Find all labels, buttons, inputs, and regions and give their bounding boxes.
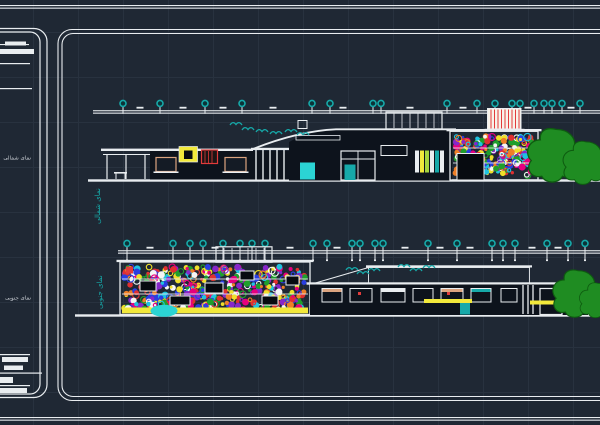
grid-bubble [454,240,460,246]
clerestory-mullions [394,113,434,128]
facade-dot [263,265,269,271]
facade-dot [493,143,497,147]
facade-band [453,148,536,149]
facade-dot [195,265,200,270]
bench-legs [116,174,125,180]
facade-dot [232,283,235,286]
striped-door [202,150,218,164]
titleblock-bars [0,42,42,394]
dimension-text-dash [180,107,187,109]
facade-dot [221,302,225,306]
teal-door [460,301,470,315]
facade-dot [210,274,217,281]
facade-dot [236,283,242,289]
grid-bubble-foot [382,260,384,262]
titleblock-north-label: نمای شمالی [3,156,31,162]
cyan-blob [151,305,178,317]
yellow-base-strip [122,308,308,314]
facade-dot [296,268,300,272]
south-side-label: نمای جنوبی [96,275,104,309]
facade-dot [202,295,206,299]
bird-icon [230,123,242,125]
titleblock-south-label: نمای جنوبی [5,296,31,302]
facade-dot [496,135,502,141]
facade-dot [205,264,211,270]
yellow-volume-window [184,151,193,160]
facade-dot [231,294,237,300]
facade-dot [276,264,282,270]
window [225,158,246,172]
facade-dot [158,271,165,278]
grid-bubble [489,240,495,246]
facade-dot [248,298,252,302]
bird-icon [256,130,268,132]
facade-dot [189,288,196,295]
facade-dot [128,283,131,286]
grid-bubble [237,240,243,246]
grid-bubble [370,100,376,106]
bird-icon [357,272,369,274]
facade-dot [176,286,182,292]
titleblock-bar [5,42,26,46]
titleblock-bar [0,385,30,386]
dimension-text-dash [402,247,409,249]
grid-bubble [549,100,555,106]
facade-dot [146,302,151,307]
grid-bubble [309,100,315,106]
grid-bubble [512,240,518,246]
titleblock-bar [4,366,23,371]
facade-dot [170,266,176,272]
south-dot-facade [121,264,308,313]
facade-dot [260,285,263,288]
north-building [88,109,600,185]
red-accent [358,292,361,295]
titleblock-bar [0,377,13,383]
facade-opening [140,281,156,291]
sloped-roof-line [312,268,369,285]
south-elevation: نمای جنوبی [75,240,600,317]
cad-canvas[interactable]: نمای شمالی نمای جنوبی نمای شمالی [0,0,600,425]
facade-dot [161,281,164,284]
facade-dot [511,171,514,174]
facade-dot [264,281,269,286]
facade-dot [508,149,515,156]
facade-opening [457,154,484,181]
grid-bubble [541,100,547,106]
facade-band [122,294,308,295]
facade-dot [185,267,188,270]
cyan-panel [300,163,315,180]
facade-dot [276,284,280,288]
north-elevation: نمای شمالی [88,100,600,224]
dimension-text-dash [568,107,575,109]
north-dot-facade [453,133,537,180]
facade-dot [302,274,308,280]
grid-bubble [200,240,206,246]
grid-bubble-foot [567,260,569,262]
dimension-line [93,110,600,111]
grid-bubble-foot [427,260,429,262]
grid-bubble [474,100,480,106]
facade-dot [519,138,522,141]
facade-dot [227,286,231,290]
facade-dot [298,298,302,302]
titleblock: نمای شمالی نمای جنوبی [0,29,47,398]
grid-bubble [157,100,163,106]
facade-dot [514,148,519,153]
north-dimension-line [93,100,600,113]
grid-bubble [324,240,330,246]
facade-dot [272,283,275,286]
grid-bubble [187,240,193,246]
facade-opening [170,296,190,305]
facade-dot [228,267,232,271]
facade-dot [474,142,477,145]
facade-dot [146,264,152,270]
facade-dot [295,299,299,303]
south-trees [553,270,600,318]
facade-dot [500,170,506,176]
grid-bubble [327,100,333,106]
grid-bubble [170,240,176,246]
grid-bubble [544,240,550,246]
sheet-outer-border [0,5,600,421]
bird-icon [242,128,254,130]
porch-columns [107,154,145,179]
facade-dot [194,284,197,287]
window [156,158,176,172]
grid-bubble [565,240,571,246]
roof-stack [298,121,307,129]
grid-bubble-foot [546,260,548,262]
yellow-canopy [424,299,472,303]
grid-bubble-foot [359,260,361,262]
rooftop-mullions [224,248,264,261]
red-accent [126,267,133,274]
dimension-text-dash [270,107,277,109]
grid-bubble [582,240,588,246]
south-dimension-line [118,240,600,261]
titleblock-bar [0,88,32,89]
grid-bubble [372,240,378,246]
dimension-text-dash [147,247,154,249]
facade-dot [493,166,499,172]
grid-bubble-foot [584,260,586,262]
grid-bubble [492,100,498,106]
grid-bubble [425,240,431,246]
facade-dot [207,271,211,275]
facade-dot [146,272,149,275]
facade-dot [279,271,282,274]
dimension-line [93,113,600,114]
facade-dot [483,135,487,139]
grid-bubble-foot [491,260,493,262]
facade-opening [286,276,299,285]
grid-bubble [120,100,126,106]
facade-dot [176,272,181,277]
facade-dot [251,282,255,286]
bird-icon [285,130,297,132]
bird-icon [368,269,380,271]
window-sill [223,172,249,174]
titleblock-bar [0,63,30,64]
facade-dot [163,266,167,270]
grid-bubble-foot [514,260,516,262]
grid-bubble [310,240,316,246]
facade-dot [490,158,493,161]
facade-dot [295,287,299,291]
grid-bubble [509,100,515,106]
dimension-text-dash [467,247,474,249]
north-birds [230,123,309,135]
grid-bubble [517,100,523,106]
grid-bubble [444,100,450,106]
facade-opening [262,296,278,305]
north-side-label: نمای شمالی [94,188,102,224]
facade-dot [134,302,138,306]
dimension-text-dash [220,107,227,109]
dimension-text-dash [555,247,562,249]
grid-bubble [220,240,226,246]
grid-bubble [249,240,255,246]
grid-bubble [531,100,537,106]
facade-dot [519,163,526,170]
facade-dot [291,295,294,298]
grid-bubble-foot [374,260,376,262]
dimension-text-dash [334,247,341,249]
facade-dot [170,286,173,289]
dimension-text-dash [437,247,444,249]
grid-bubble [380,240,386,246]
dimension-text-dash [460,107,467,109]
grid-bubble [378,100,384,106]
facade-dot [479,142,483,146]
bird-icon [270,132,282,134]
facade-dot [228,279,232,283]
dimension-text-dash [137,107,144,109]
facade-dot [191,272,197,278]
facade-opening [205,283,223,293]
facade-dot [508,135,514,141]
facade-dot [475,136,479,140]
grid-bubble [357,240,363,246]
grid-bubble-foot [456,260,458,262]
titleblock-bar [0,388,27,393]
facade-dot [121,274,128,281]
dimension-text-dash [340,107,347,109]
porch-roof-slab [101,149,253,151]
window-sill [154,172,179,174]
facade-dot [228,301,234,307]
grid-bubble-foot [502,260,504,262]
grid-bubble [202,100,208,106]
dimension-text-dash [529,247,536,249]
facade-dot [220,297,223,300]
red-accent [447,292,450,295]
facade-dot [212,266,219,273]
bench [114,172,127,174]
titleblock-bar [0,354,30,355]
bird-icon [346,268,358,270]
titleblock-bar [0,373,42,374]
grid-bubble-foot [326,260,328,262]
facade-opening [240,271,254,280]
bird-icon [410,269,422,271]
grid-bubble-foot [351,260,353,262]
dimension-text-dash [407,107,414,109]
facade-dot [289,267,293,271]
facade-dot [490,167,494,171]
titleblock-bar [0,49,34,54]
facade-dot [150,270,157,277]
facade-dot [186,270,191,275]
facade-dot [282,286,285,289]
facade-dot [301,280,306,285]
grid-bubble [577,100,583,106]
dimension-text-dash [525,107,532,109]
dimension-text-dash [287,247,294,249]
grid-bubble [559,100,565,106]
facade-dot [159,295,163,299]
facade-dot [234,264,241,271]
facade-dot [207,298,214,305]
teal-door [345,165,356,181]
titleblock-bar [2,357,28,362]
drawing-frame [58,30,600,401]
upper-volume [369,268,530,284]
grid-bubble [262,240,268,246]
facade-dot [296,294,300,298]
grid-bubble [239,100,245,106]
facade-dot [175,277,181,283]
facade-band [122,279,308,280]
facade-dot [124,291,129,296]
grid-bubble [124,240,130,246]
facade-dot [291,272,295,276]
grid-bubble [500,240,506,246]
south-building [75,247,600,318]
grid-bubble [349,240,355,246]
facade-dot [501,138,507,144]
